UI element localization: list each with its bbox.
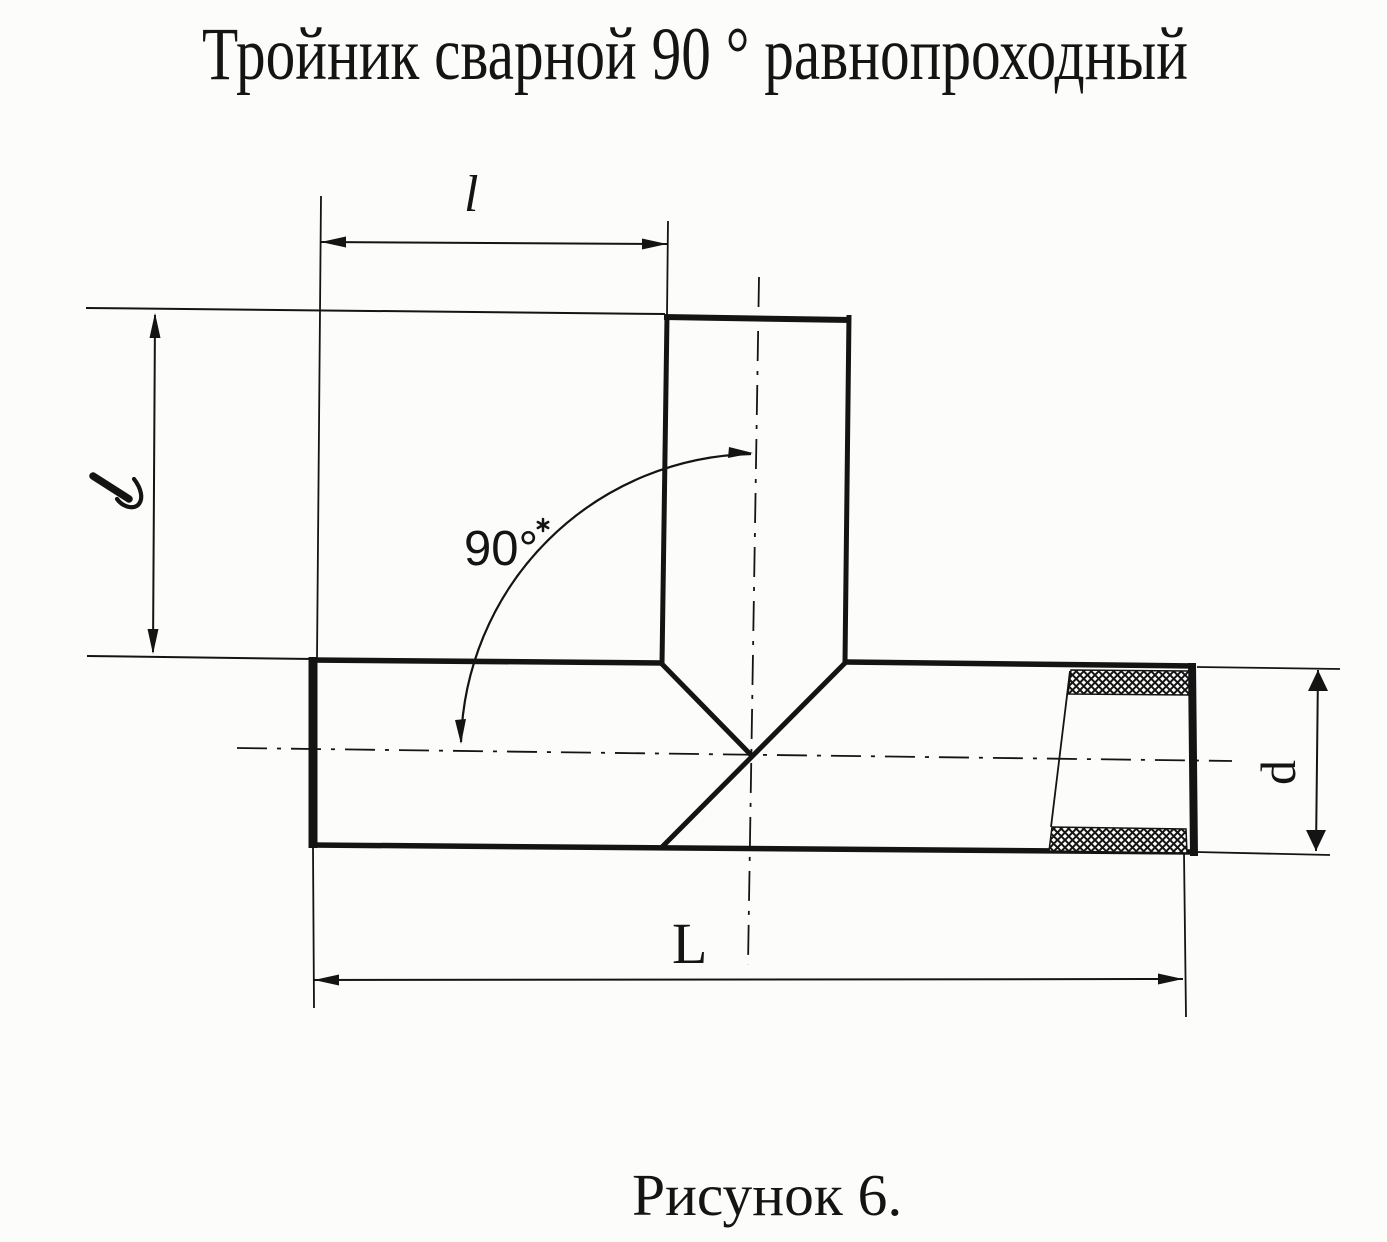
svg-text:d: d [1250, 760, 1306, 785]
svg-text:90°: 90° [464, 522, 538, 576]
svg-text:l: l [464, 166, 478, 223]
svg-text:L: L [672, 911, 707, 976]
svg-text:Тройник сварной 90 ° равнопрох: Тройник сварной 90 ° равнопроходный [202, 13, 1188, 96]
svg-text:Рисунок 6.: Рисунок 6. [632, 1162, 902, 1228]
